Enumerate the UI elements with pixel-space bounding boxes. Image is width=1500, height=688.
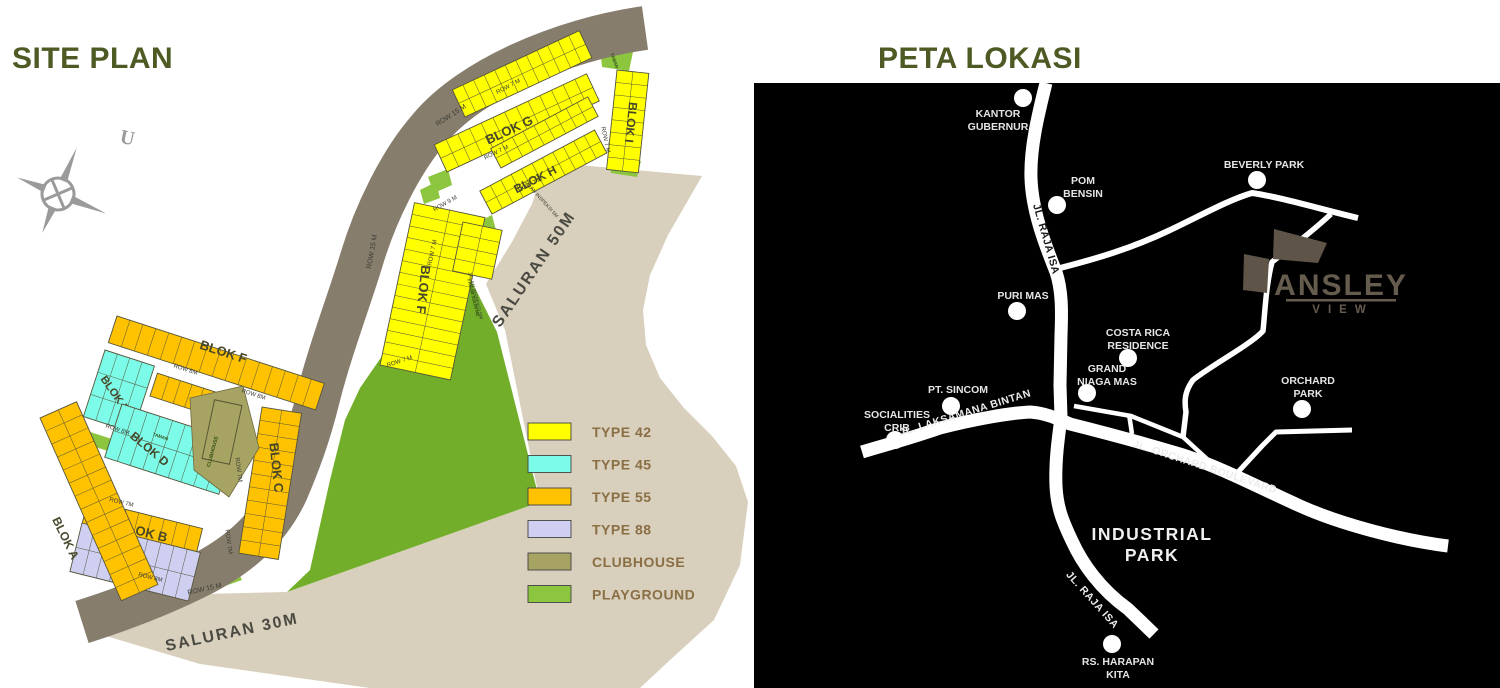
legend-swatch-CLUBHOUSE: [528, 553, 571, 570]
map-point-dot: [1008, 302, 1026, 320]
map-point-label: SOCIALITIES: [864, 409, 930, 421]
legend-label-TYPE-55: TYPE 55: [592, 489, 652, 505]
block-name-label: BLOK A: [49, 515, 82, 562]
legend-label-TYPE-45: TYPE 45: [592, 457, 652, 473]
legend-swatch-TYPE-42: [528, 423, 571, 440]
location-map: KANTORGUBERNURPOMBENSINBEVERLY PARKPURI …: [754, 83, 1500, 688]
block-BLOK-I: BLOK I: [607, 70, 649, 173]
map-point-label: POM: [1071, 175, 1095, 187]
legend-swatch-TYPE-55: [528, 488, 571, 505]
legend-swatch-PLAYGROUND: [528, 586, 571, 603]
map-area-label: PARK: [1125, 545, 1179, 565]
compass-north-letter: U: [118, 126, 137, 151]
road-divider-crossbar: [1129, 414, 1132, 434]
map-point-label: PURI MAS: [997, 290, 1048, 302]
map-point-label: KANTOR: [976, 108, 1021, 120]
map-title: PETA LOKASI: [878, 42, 1082, 75]
map-point-dot: [1293, 400, 1311, 418]
brochure-page: BLOK GBLOK HBLOK IBLOK FBLOK FBLOK EBLOK…: [0, 0, 1500, 688]
compass-icon: U: [1, 126, 136, 253]
logo-name: ANSLEY: [1274, 269, 1408, 302]
map-area-label: INDUSTRIAL: [1092, 524, 1213, 544]
legend-label-TYPE-88: TYPE 88: [592, 522, 652, 538]
legend-label-TYPE-42: TYPE 42: [592, 424, 652, 440]
map-point-label: BENSIN: [1063, 188, 1103, 200]
map-point-label: PT. SINCOM: [928, 384, 988, 396]
map-point-label: ORCHARD: [1281, 375, 1335, 387]
map-point-label: GRAND: [1088, 363, 1127, 375]
map-point-dot: [1014, 89, 1032, 107]
ansley-site-area: [1243, 254, 1269, 293]
scene: BLOK GBLOK HBLOK IBLOK FBLOK FBLOK EBLOK…: [0, 0, 1500, 688]
map-point-label: GUBERNUR: [968, 121, 1029, 133]
map-point-label: PARK: [1294, 388, 1323, 400]
map-point-label: NIAGA MAS: [1077, 376, 1137, 388]
map-point-label: KITA: [1106, 669, 1130, 681]
map-point-dot: [1103, 635, 1121, 653]
logo-underline: [1286, 299, 1396, 302]
map-point-label: COSTA RICA: [1106, 327, 1171, 339]
legend-label-PLAYGROUND: PLAYGROUND: [592, 587, 695, 603]
logo-subtitle: VIEW: [1312, 304, 1373, 316]
legend-swatch-TYPE-88: [528, 521, 571, 538]
map-point-dot: [1248, 171, 1266, 189]
legend-label-CLUBHOUSE: CLUBHOUSE: [592, 554, 685, 570]
map-point-label: RESIDENCE: [1107, 340, 1168, 352]
site-plan-title: SITE PLAN: [12, 42, 173, 75]
site-plan: BLOK GBLOK HBLOK IBLOK FBLOK FBLOK EBLOK…: [1, 28, 748, 688]
map-point-label: BEVERLY PARK: [1224, 159, 1305, 171]
legend-swatch-TYPE-45: [528, 456, 571, 473]
map-point-label: RS. HARAPAN: [1082, 656, 1154, 668]
